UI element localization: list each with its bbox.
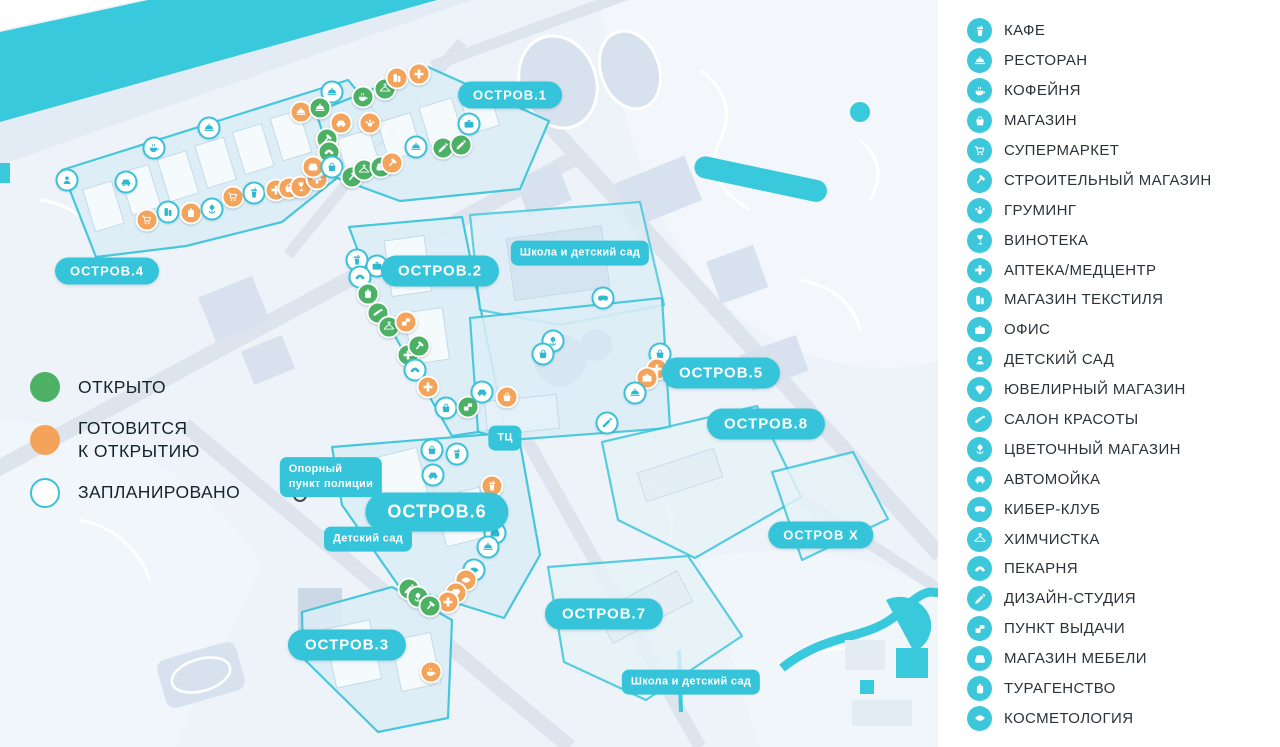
status-label: ОТКРЫТО	[78, 376, 166, 399]
map-marker-basket[interactable]	[435, 397, 458, 420]
legend-panel: КАФЕ РЕСТОРАН КОФЕЙНЯ МАГАЗИН СУПЕРМАРКЕ…	[938, 0, 1280, 747]
map-marker-travel[interactable]	[180, 202, 203, 225]
map-marker-restaurant[interactable]	[477, 536, 500, 559]
legend-row: РЕСТОРАН	[967, 46, 1280, 76]
status-swatch	[30, 425, 60, 455]
map-marker-cafe[interactable]	[243, 182, 266, 205]
infrastructure-map-page: ОСТРОВ.1ОСТРОВ.2ОСТРОВ.3ОСТРОВ.4ОСТРОВ.5…	[0, 0, 1280, 747]
textile-icon	[967, 287, 992, 312]
legend-category-label: КАФЕ	[1004, 22, 1045, 39]
legend-category-label: МАГАЗИН	[1004, 112, 1077, 129]
legend-category-label: АВТОМОЙКА	[1004, 471, 1100, 488]
map-marker-flower[interactable]	[201, 198, 224, 221]
legend-row: МАГАЗИН МЕБЕЛИ	[967, 644, 1280, 674]
legend-category-label: КОСМЕТОЛОГИЯ	[1004, 710, 1133, 727]
map-marker-basket[interactable]	[496, 386, 519, 409]
legend-row: МАГАЗИН ТЕКСТИЛЯ	[967, 285, 1280, 315]
map-marker-textile[interactable]	[157, 201, 180, 224]
legend-category-label: СУПЕРМАРКЕТ	[1004, 142, 1119, 159]
map-marker-cross[interactable]	[417, 376, 440, 399]
legend-category-label: ДЕТСКИЙ САД	[1004, 351, 1114, 368]
map-marker-cross[interactable]	[408, 63, 431, 86]
legend-row: ПЕКАРНЯ	[967, 554, 1280, 584]
map-marker-coffee[interactable]	[420, 661, 443, 684]
status-legend: ОТКРЫТО ГОТОВИТСЯ К ОТКРЫТИЮ ЗАПЛАНИРОВА…	[30, 372, 240, 523]
coffee-icon	[967, 78, 992, 103]
map-info-label: Школа и детский сад	[511, 241, 649, 266]
map-marker-basket[interactable]	[532, 343, 555, 366]
island-label[interactable]: ОСТРОВ.8	[707, 409, 825, 440]
island-label[interactable]: ОСТРОВ.7	[545, 599, 663, 630]
map-marker-cyber[interactable]	[592, 287, 615, 310]
travel-icon	[967, 676, 992, 701]
legend-row: ХИМЧИСТКА	[967, 524, 1280, 554]
cross-icon	[967, 258, 992, 283]
legend-row: ДЕТСКИЙ САД	[967, 345, 1280, 375]
beauty-icon	[967, 407, 992, 432]
legend-category-label: МАГАЗИН ТЕКСТИЛЯ	[1004, 291, 1163, 308]
cafe-icon	[967, 18, 992, 43]
legend-row: МАГАЗИН	[967, 106, 1280, 136]
legend-row: КОФЕЙНЯ	[967, 76, 1280, 106]
cosmetology-icon	[967, 706, 992, 731]
paw-icon	[967, 198, 992, 223]
hammer-icon	[967, 168, 992, 193]
design-icon	[967, 586, 992, 611]
pickup-icon	[967, 616, 992, 641]
map-marker-hammer[interactable]	[408, 335, 431, 358]
legend-category-label: КИБЕР-КЛУБ	[1004, 501, 1100, 518]
kindergarten-icon	[967, 347, 992, 372]
legend-category-label: ПУНКТ ВЫДАЧИ	[1004, 620, 1125, 637]
map-marker-textile[interactable]	[386, 67, 409, 90]
status-legend-row: ГОТОВИТСЯ К ОТКРЫТИЮ	[30, 417, 240, 463]
island-label[interactable]: ОСТРОВ.3	[288, 630, 406, 661]
legend-row: ДИЗАЙН-СТУДИЯ	[967, 584, 1280, 614]
legend-row: СТРОИТЕЛЬНЫЙ МАГАЗИН	[967, 165, 1280, 195]
bakery-icon	[967, 556, 992, 581]
status-swatch	[30, 372, 60, 402]
map-marker-restaurant[interactable]	[624, 382, 647, 405]
legend-row: ГРУМИНГ	[967, 195, 1280, 225]
map-info-label: Школа и детский сад	[622, 670, 760, 695]
legend-row: ЦВЕТОЧНЫЙ МАГАЗИН	[967, 434, 1280, 464]
status-legend-row: ЗАПЛАНИРОВАНО	[30, 478, 240, 508]
island-label[interactable]: ОСТРОВ.4	[55, 258, 159, 285]
restaurant-icon	[967, 48, 992, 73]
legend-category-label: СТРОИТЕЛЬНЫЙ МАГАЗИН	[1004, 172, 1212, 189]
legend-category-label: ДИЗАЙН-СТУДИЯ	[1004, 590, 1136, 607]
map-marker-carwash[interactable]	[115, 171, 138, 194]
legend-row: КОСМЕТОЛОГИЯ	[967, 703, 1280, 733]
map-marker-restaurant[interactable]	[309, 97, 332, 120]
map-marker-hammer[interactable]	[419, 595, 442, 618]
map-marker-coffee[interactable]	[143, 137, 166, 160]
status-legend-row: ОТКРЫТО	[30, 372, 240, 402]
island-label[interactable]: ОСТРОВ.5	[662, 358, 780, 389]
legend-row: ОФИС	[967, 315, 1280, 345]
map-info-label: Опорный пункт полиции	[280, 457, 382, 497]
legend-row: САЛОН КРАСОТЫ	[967, 405, 1280, 435]
legend-category-label: ВИНОТЕКА	[1004, 232, 1088, 249]
legend-category-label: ОФИС	[1004, 321, 1050, 338]
status-label: ЗАПЛАНИРОВАНО	[78, 481, 240, 504]
map-marker-paw[interactable]	[359, 112, 382, 135]
status-label: ГОТОВИТСЯ К ОТКРЫТИЮ	[78, 417, 200, 463]
legend-category-label: ЦВЕТОЧНЫЙ МАГАЗИН	[1004, 441, 1181, 458]
legend-panel-list: КАФЕ РЕСТОРАН КОФЕЙНЯ МАГАЗИН СУПЕРМАРКЕ…	[967, 16, 1280, 733]
legend-category-label: ПЕКАРНЯ	[1004, 560, 1078, 577]
map-marker-pickup[interactable]	[395, 311, 418, 334]
map-marker-carwash[interactable]	[471, 381, 494, 404]
basket-icon	[967, 108, 992, 133]
map-marker-design[interactable]	[450, 134, 473, 157]
legend-row: СУПЕРМАРКЕТ	[967, 136, 1280, 166]
diamond-icon	[967, 377, 992, 402]
map-info-label: Детский сад	[324, 527, 412, 552]
legend-row: ЮВЕЛИРНЫЙ МАГАЗИН	[967, 375, 1280, 405]
legend-category-label: КОФЕЙНЯ	[1004, 82, 1081, 99]
flower-icon	[967, 437, 992, 462]
map-marker-restaurant[interactable]	[198, 117, 221, 140]
island-label[interactable]: ОСТРОВ.2	[381, 256, 499, 287]
legend-row: АПТЕКА/МЕДЦЕНТР	[967, 255, 1280, 285]
status-swatch	[30, 478, 60, 508]
island-label[interactable]: ОСТРОВ Х	[768, 522, 873, 549]
cart-icon	[967, 138, 992, 163]
legend-category-label: ХИМЧИСТКА	[1004, 531, 1100, 548]
legend-row: ТУРАГЕНСТВО	[967, 674, 1280, 704]
map-marker-design[interactable]	[596, 412, 619, 435]
legend-row: АВТОМОЙКА	[967, 464, 1280, 494]
map-info-label: ТЦ	[488, 426, 521, 451]
map-marker-carwash[interactable]	[422, 464, 445, 487]
carwash-icon	[967, 467, 992, 492]
wine-icon	[967, 228, 992, 253]
legend-row: ВИНОТЕКА	[967, 225, 1280, 255]
legend-category-label: ТУРАГЕНСТВО	[1004, 680, 1116, 697]
map-marker-cafe[interactable]	[446, 443, 469, 466]
legend-row: КАФЕ	[967, 16, 1280, 46]
furniture-icon	[967, 646, 992, 671]
map-marker-office[interactable]	[458, 113, 481, 136]
legend-category-label: АПТЕКА/МЕДЦЕНТР	[1004, 262, 1156, 279]
legend-category-label: ГРУМИНГ	[1004, 202, 1076, 219]
legend-category-label: РЕСТОРАН	[1004, 52, 1088, 69]
map-marker-cart[interactable]	[136, 209, 159, 232]
drycleaning-icon	[967, 527, 992, 552]
legend-row: КИБЕР-КЛУБ	[967, 494, 1280, 524]
map-marker-coffee[interactable]	[352, 86, 375, 109]
cyber-icon	[967, 497, 992, 522]
map-marker-basket[interactable]	[421, 439, 444, 462]
legend-category-label: МАГАЗИН МЕБЕЛИ	[1004, 650, 1147, 667]
map-marker-cart[interactable]	[222, 186, 245, 209]
island-label[interactable]: ОСТРОВ.1	[458, 82, 562, 109]
legend-row: ПУНКТ ВЫДАЧИ	[967, 614, 1280, 644]
map-marker-restaurant[interactable]	[405, 136, 428, 159]
legend-category-label: САЛОН КРАСОТЫ	[1004, 411, 1139, 428]
map-marker-kindergarten[interactable]	[56, 169, 79, 192]
map-marker-hammer[interactable]	[381, 152, 404, 175]
office-icon	[967, 317, 992, 342]
legend-category-label: ЮВЕЛИРНЫЙ МАГАЗИН	[1004, 381, 1186, 398]
